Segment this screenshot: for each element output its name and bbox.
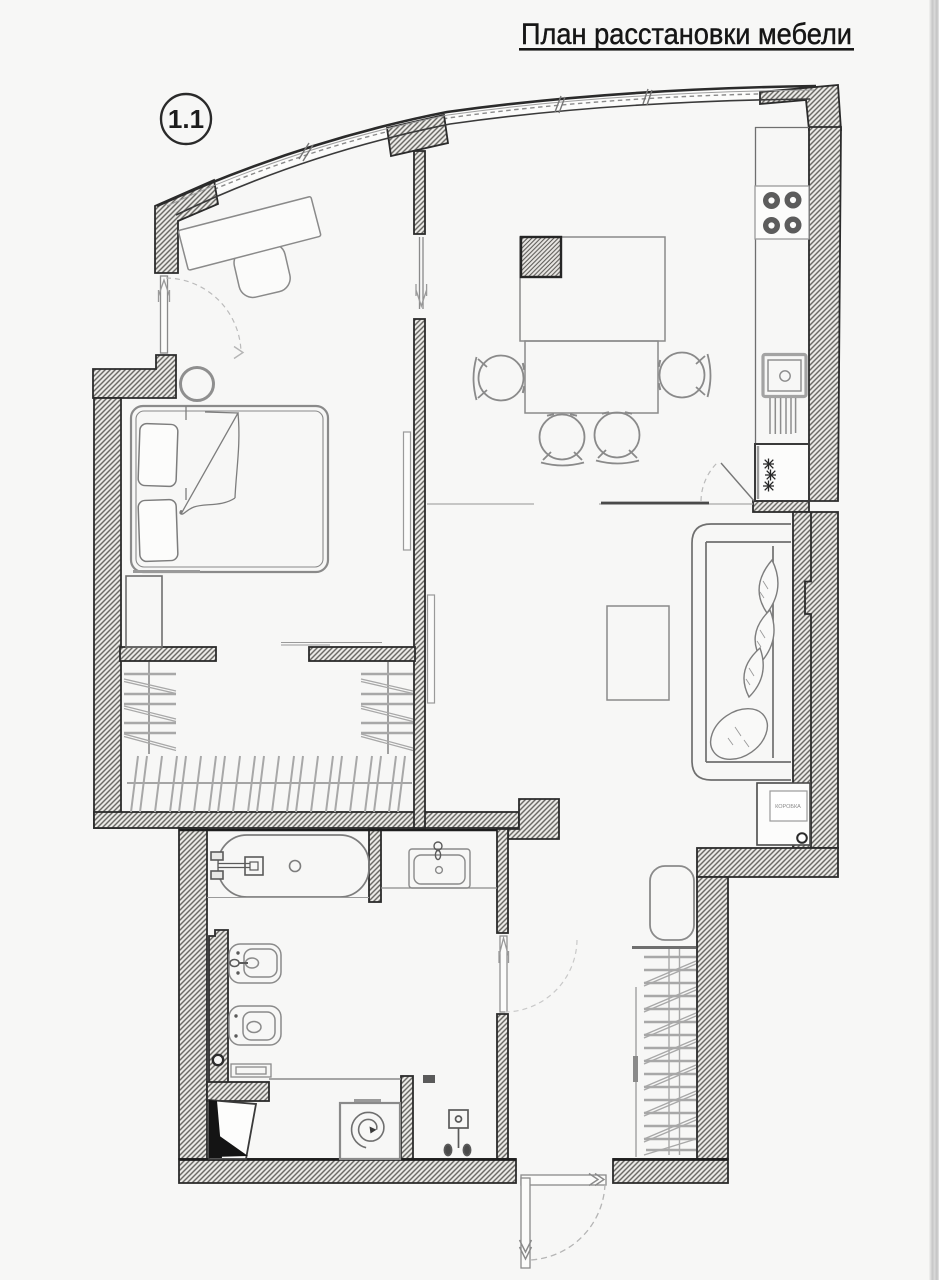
svg-text:КОРОБКА: КОРОБКА [775,804,801,810]
svg-text:План расстановки мебели: План расстановки мебели [521,18,852,51]
svg-text:1.1: 1.1 [168,104,204,134]
